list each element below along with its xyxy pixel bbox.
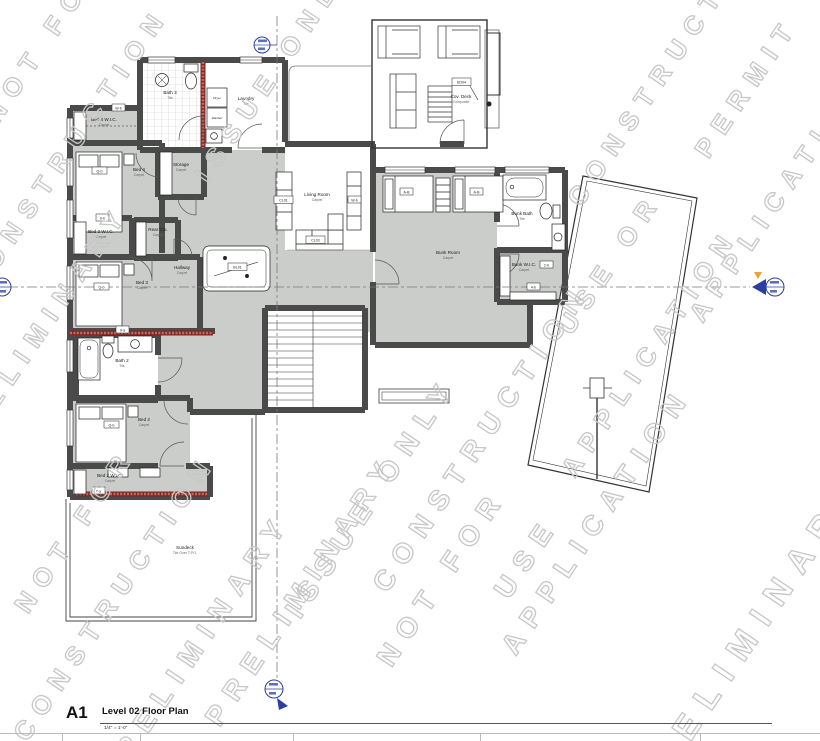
svg-text:2-b: 2-b — [544, 263, 549, 267]
svg-text:9-a: 9-a — [120, 328, 125, 332]
svg-text:4-b: 4-b — [531, 285, 536, 289]
svg-text:Q-b: Q-b — [97, 169, 103, 173]
svg-text:Carpet: Carpet — [519, 268, 530, 272]
sheet-border-tick — [480, 733, 481, 741]
svg-text:Carpet: Carpet — [153, 233, 164, 237]
svg-text:Tile: Tile — [519, 217, 525, 221]
svg-text:Tile: Tile — [167, 96, 173, 100]
svg-text:Carpet: Carpet — [176, 168, 187, 172]
svg-text:BL01: BL01 — [233, 266, 241, 270]
room-label: Bed 4 W.I.C. — [91, 117, 117, 122]
room-label: Hallway — [174, 265, 191, 270]
section-marker-left — [0, 278, 11, 296]
svg-text:Carpet: Carpet — [177, 271, 188, 275]
svg-text:Composite: Composite — [453, 100, 470, 104]
svg-text:9-b: 9-b — [100, 216, 105, 220]
svg-text:Carpet: Carpet — [99, 123, 110, 127]
svg-text:ED04: ED04 — [457, 81, 466, 85]
roof-edge-line — [289, 66, 371, 142]
room-label: Rear Clo. — [148, 227, 167, 232]
room-label: Sundeck — [176, 545, 195, 550]
room-label: Cov. Deck — [451, 94, 473, 99]
callout-marker-top — [254, 37, 277, 53]
room-label: Bunk Bath — [511, 211, 533, 216]
svg-text:T-a: T-a — [96, 489, 101, 493]
svg-text:Tile: Tile — [243, 102, 249, 106]
room-label: Bed 3 — [136, 280, 148, 285]
room-label: Bunk W.I.C. — [512, 262, 536, 267]
washer-label: Washer — [212, 116, 223, 120]
svg-text:Tile Over T.P.O.: Tile Over T.P.O. — [173, 551, 197, 555]
title-underline — [100, 723, 772, 724]
room-label: Bath 2 — [115, 358, 129, 363]
sheet-border-tick — [62, 733, 63, 741]
svg-text:Carpet: Carpet — [312, 198, 323, 202]
section-marker-right — [752, 272, 784, 296]
svg-text:Q-b: Q-b — [99, 285, 105, 289]
sheet-border-tick — [140, 733, 141, 741]
svg-text:Carpet: Carpet — [96, 235, 107, 239]
room-label: Laundry — [238, 96, 255, 101]
room-label: Bath 3 — [163, 90, 177, 95]
svg-text:Carpet: Carpet — [137, 286, 148, 290]
svg-text:A-B: A-B — [474, 190, 481, 194]
svg-text:Carpet: Carpet — [105, 479, 116, 483]
floor-fills — [70, 60, 566, 497]
svg-text:A-B: A-B — [404, 190, 411, 194]
drawing-sheet: Bath 3 Tile Laundry Tile Bed 4 W.I.C. Ca… — [0, 0, 820, 741]
sheet-scale: 1/4" = 1'-0" — [104, 726, 127, 731]
svg-text:Carpet: Carpet — [443, 256, 454, 260]
svg-text:CL01: CL01 — [279, 199, 288, 203]
room-label: Bed 2 W.I.C. — [97, 473, 123, 478]
sheet-detail-number: A1 — [66, 703, 88, 723]
sheet-border-line — [0, 733, 820, 734]
svg-text:W-b: W-b — [115, 106, 122, 110]
svg-text:Carpet: Carpet — [134, 173, 145, 177]
sheet-border-tick — [293, 733, 294, 741]
room-label: Bed 4 — [133, 167, 145, 172]
svg-text:CL03: CL03 — [311, 239, 320, 243]
svg-text:Q-b: Q-b — [109, 423, 115, 427]
room-label: Bed 2 — [138, 417, 150, 422]
dryer-label: Dryer — [213, 96, 221, 100]
room-label: Living Room — [304, 192, 330, 197]
floor-plan-drawing: Bath 3 Tile Laundry Tile Bed 4 W.I.C. Ca… — [0, 0, 820, 741]
room-label: Bunk Room — [436, 250, 460, 255]
covered-deck — [372, 20, 500, 148]
room-label: Bed 3 W.I.C. — [88, 229, 114, 234]
section-marker-bottom — [265, 680, 288, 710]
svg-text:Carpet: Carpet — [139, 423, 150, 427]
room-label: Storage — [173, 162, 190, 167]
sheet-border-tick — [700, 733, 701, 741]
sheet-title: Level 02 Floor Plan — [102, 706, 189, 717]
svg-text:W-b: W-b — [351, 198, 358, 202]
svg-text:Tile: Tile — [119, 364, 125, 368]
